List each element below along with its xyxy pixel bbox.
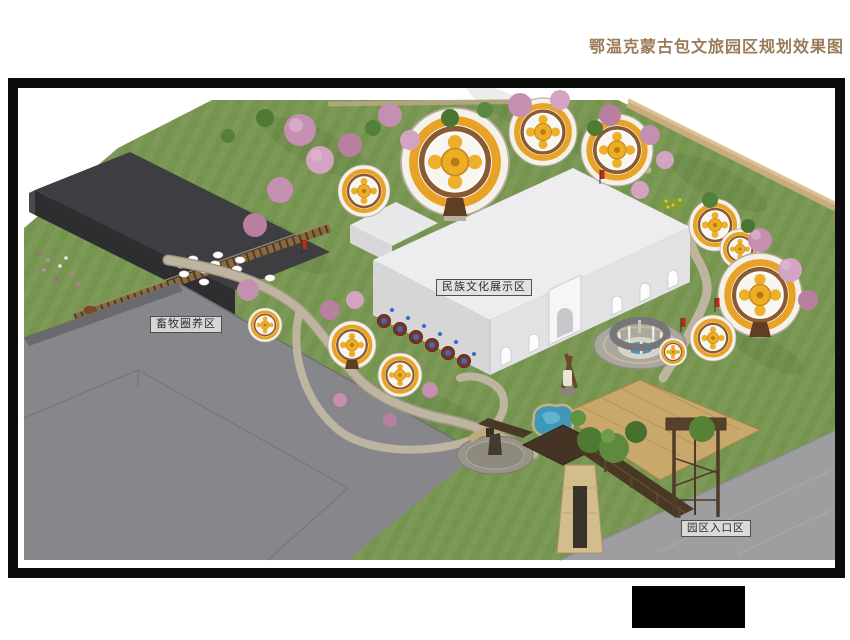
- logo-block: [632, 586, 745, 628]
- page-title: 鄂温克蒙古包文旅园区规划效果图: [589, 33, 844, 57]
- entrance-gate-tower: [557, 465, 603, 553]
- site-rendering: [18, 88, 835, 568]
- rendering-frame: [8, 78, 845, 578]
- zone-label-livestock: 畜牧圈养区: [150, 316, 222, 333]
- page: 鄂温克蒙古包文旅园区规划效果图: [0, 0, 850, 640]
- zone-label-culture: 民族文化展示区: [436, 279, 532, 296]
- zone-label-entrance: 园区入口区: [681, 520, 751, 537]
- flower-patch: [659, 198, 687, 210]
